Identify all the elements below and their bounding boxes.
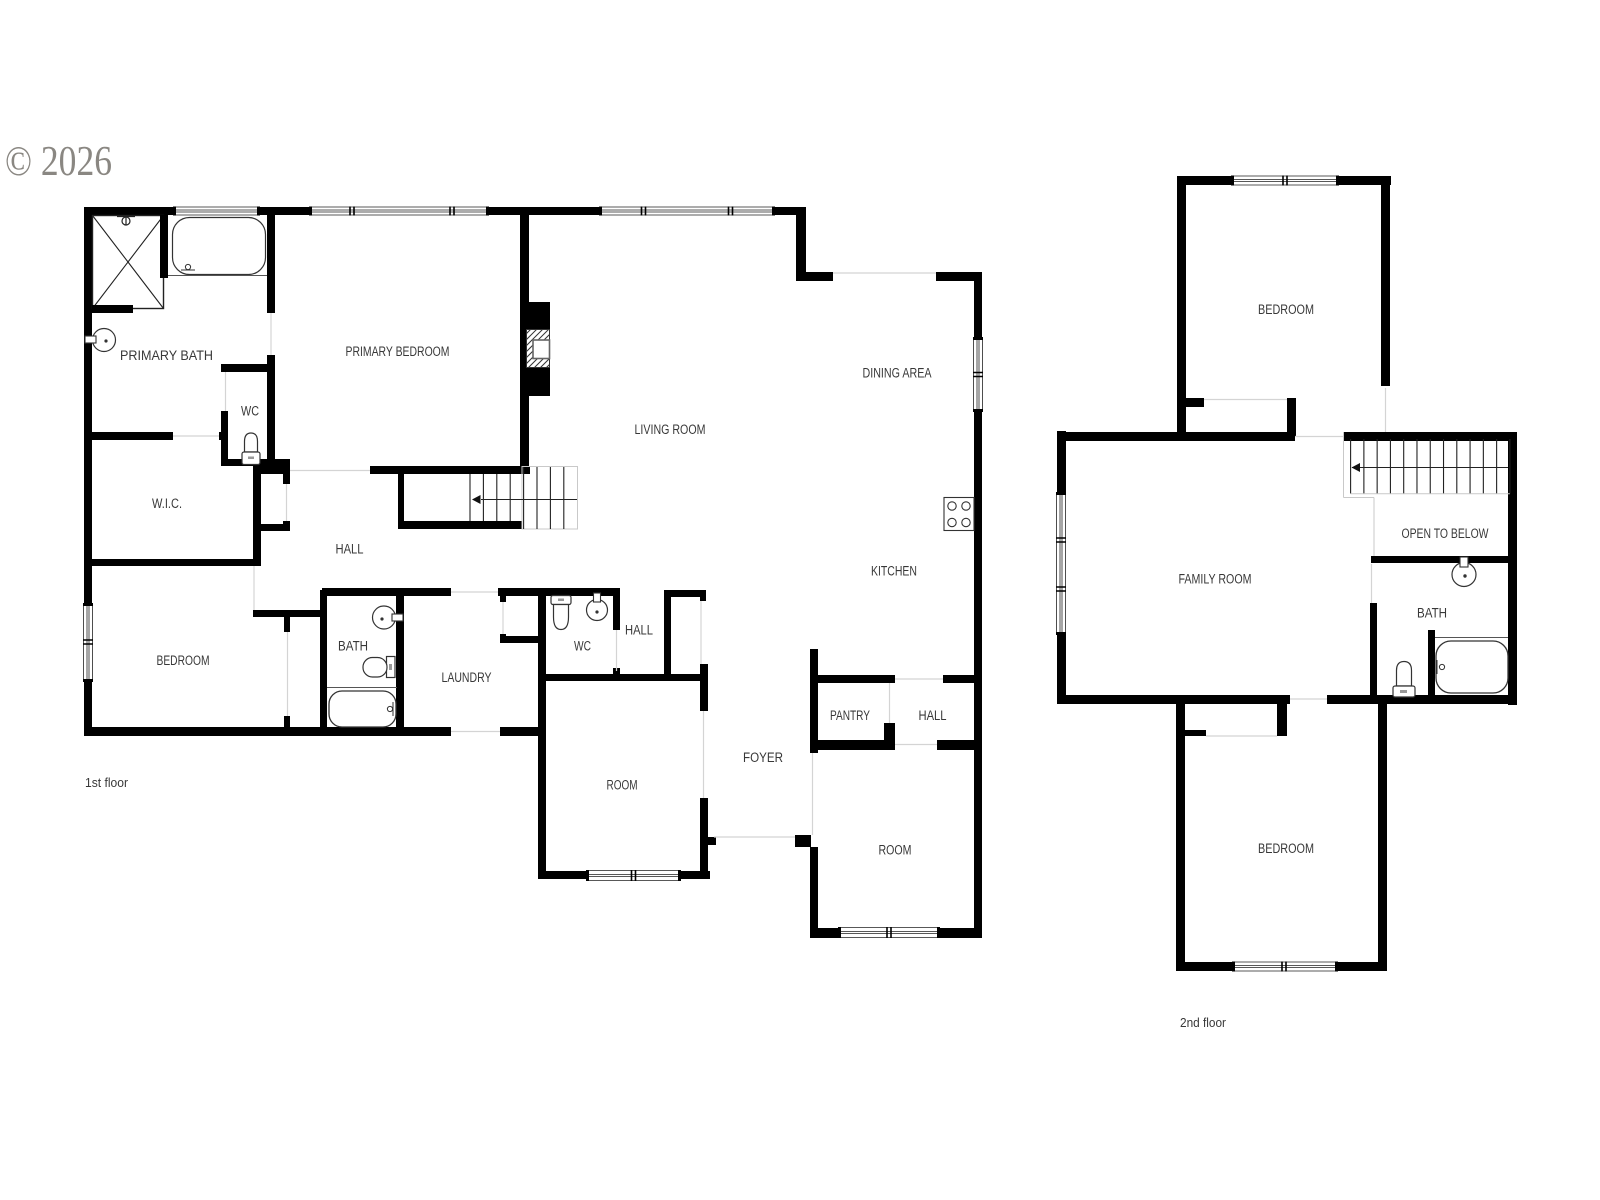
- svg-text:ROOM: ROOM: [879, 843, 912, 858]
- svg-text:W.I.C.: W.I.C.: [152, 496, 182, 511]
- svg-text:OPEN TO BELOW: OPEN TO BELOW: [1402, 526, 1489, 541]
- svg-text:DINING AREA: DINING AREA: [863, 366, 932, 381]
- svg-text:WC: WC: [241, 404, 259, 419]
- svg-text:LAUNDRY: LAUNDRY: [442, 670, 492, 685]
- svg-text:WC: WC: [574, 639, 591, 654]
- svg-text:LIVING ROOM: LIVING ROOM: [635, 422, 706, 437]
- svg-text:FAMILY ROOM: FAMILY ROOM: [1179, 572, 1252, 587]
- svg-text:1st floor: 1st floor: [85, 775, 129, 790]
- svg-text:PRIMARY BATH: PRIMARY BATH: [120, 348, 213, 363]
- svg-text:HALL: HALL: [336, 542, 364, 557]
- svg-text:BATH: BATH: [1417, 606, 1447, 621]
- svg-text:HALL: HALL: [625, 623, 653, 638]
- svg-text:ROOM: ROOM: [607, 778, 638, 793]
- svg-text:PRIMARY BEDROOM: PRIMARY BEDROOM: [346, 344, 450, 359]
- svg-text:© 2026: © 2026: [5, 139, 112, 185]
- svg-text:2nd floor: 2nd floor: [1180, 1015, 1227, 1030]
- svg-text:BATH: BATH: [338, 639, 368, 654]
- svg-text:FOYER: FOYER: [743, 750, 783, 765]
- svg-text:KITCHEN: KITCHEN: [871, 564, 917, 579]
- svg-text:PANTRY: PANTRY: [830, 708, 870, 723]
- svg-text:BEDROOM: BEDROOM: [1258, 302, 1314, 317]
- svg-text:BEDROOM: BEDROOM: [157, 653, 210, 668]
- svg-text:HALL: HALL: [919, 708, 947, 723]
- svg-text:BEDROOM: BEDROOM: [1258, 841, 1314, 856]
